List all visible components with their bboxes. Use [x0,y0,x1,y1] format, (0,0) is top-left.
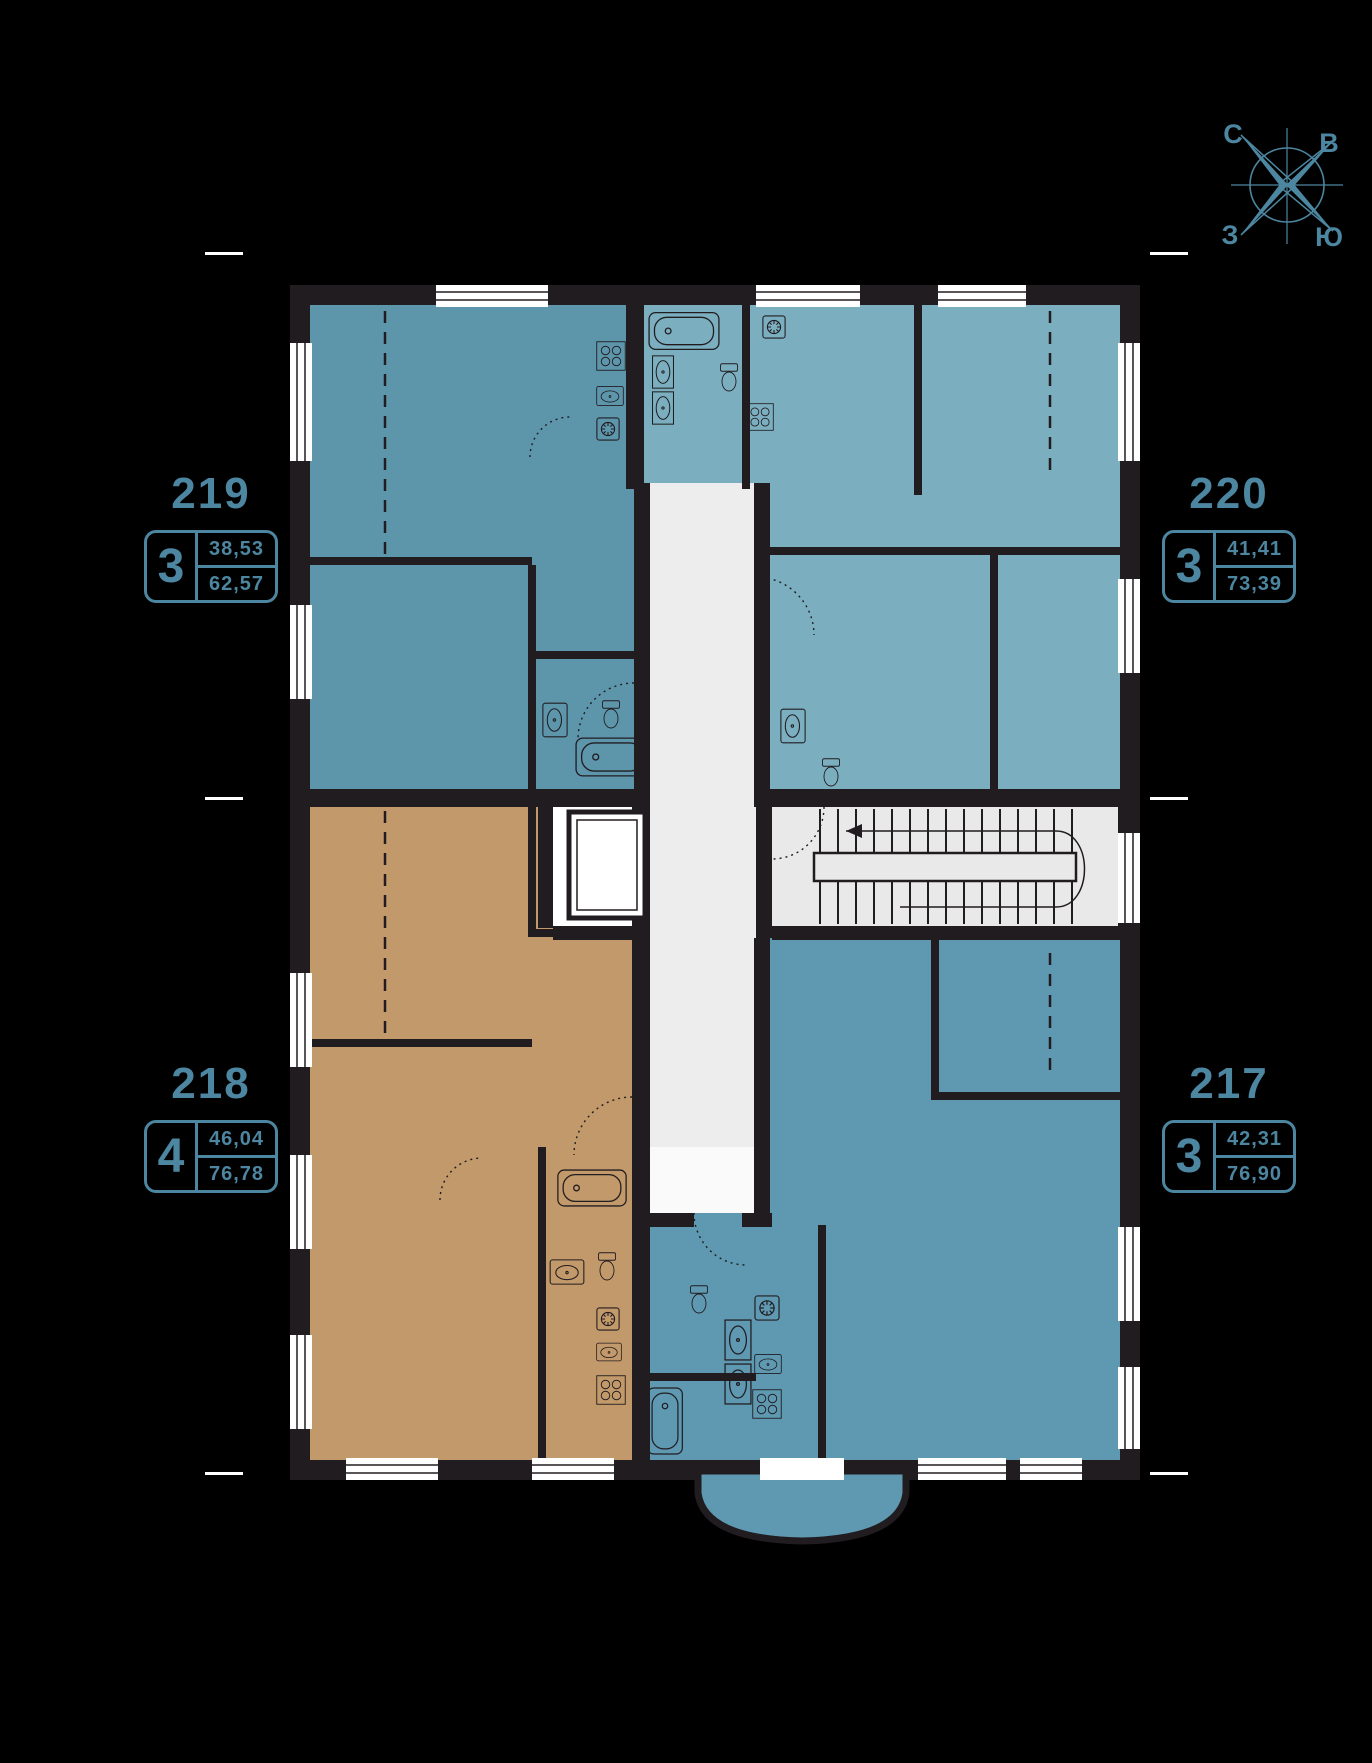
apartment-living-area: 46,04 [198,1123,275,1158]
apartment-rooms-count: 4 [147,1123,198,1190]
compass-point-sw-outline [1241,185,1291,235]
apartment-rooms-count: 3 [147,533,198,600]
apartment-living-area: 41,41 [1216,533,1293,568]
dimension-tick [1150,797,1188,800]
apartment-number: 220 [1154,472,1304,516]
apartment-label-218[interactable]: 218 4 46,04 76,78 [136,1062,286,1193]
apartment-rooms-count: 3 [1165,533,1216,600]
compass-label-east: В [1319,128,1339,158]
floor-plan-drawing [290,285,1140,1555]
apartment-total-area: 76,90 [1216,1158,1293,1190]
apartment-label-217[interactable]: 217 3 42,31 76,90 [1154,1062,1304,1193]
corridor-region [650,483,756,1213]
apartment-label-219[interactable]: 219 3 38,53 62,57 [136,472,286,603]
apartment-living-area: 42,31 [1216,1123,1293,1158]
dimension-tick [205,797,243,800]
compass-label-north: С [1223,119,1243,149]
compass-point-nw-outline [1241,135,1291,185]
apartment-rooms-count: 3 [1165,1123,1216,1190]
apartment-label-220[interactable]: 220 3 41,41 73,39 [1154,472,1304,603]
dimension-tick [205,252,243,255]
apartment-219-region[interactable] [310,305,646,791]
compass-label-south: Ю [1315,222,1343,252]
dimension-tick [205,1472,243,1475]
balcony-door [760,1458,844,1480]
apartment-total-area: 73,39 [1216,568,1293,600]
apartment-living-area: 38,53 [198,533,275,568]
dimension-tick [1150,1472,1188,1475]
floor-plan-page: С В З Ю 219 3 38,53 62,57 220 3 41,41 73… [0,0,1372,1763]
entry-vestibule [650,1147,756,1213]
apartment-number: 219 [136,472,286,516]
apartment-number: 217 [1154,1062,1304,1106]
apartment-info-box: 3 38,53 62,57 [144,530,278,603]
compass-label-west: З [1222,220,1239,250]
apartment-info-box: 4 46,04 76,78 [144,1120,278,1193]
dimension-tick [1150,252,1188,255]
apartment-info-box: 3 41,41 73,39 [1162,530,1296,603]
apartment-total-area: 62,57 [198,568,275,600]
apartment-total-area: 76,78 [198,1158,275,1190]
compass-rose: С В З Ю [1206,92,1372,264]
apartment-number: 218 [136,1062,286,1106]
apartment-info-box: 3 42,31 76,90 [1162,1120,1296,1193]
balcony-bay [698,1471,906,1541]
elevator [569,812,645,918]
